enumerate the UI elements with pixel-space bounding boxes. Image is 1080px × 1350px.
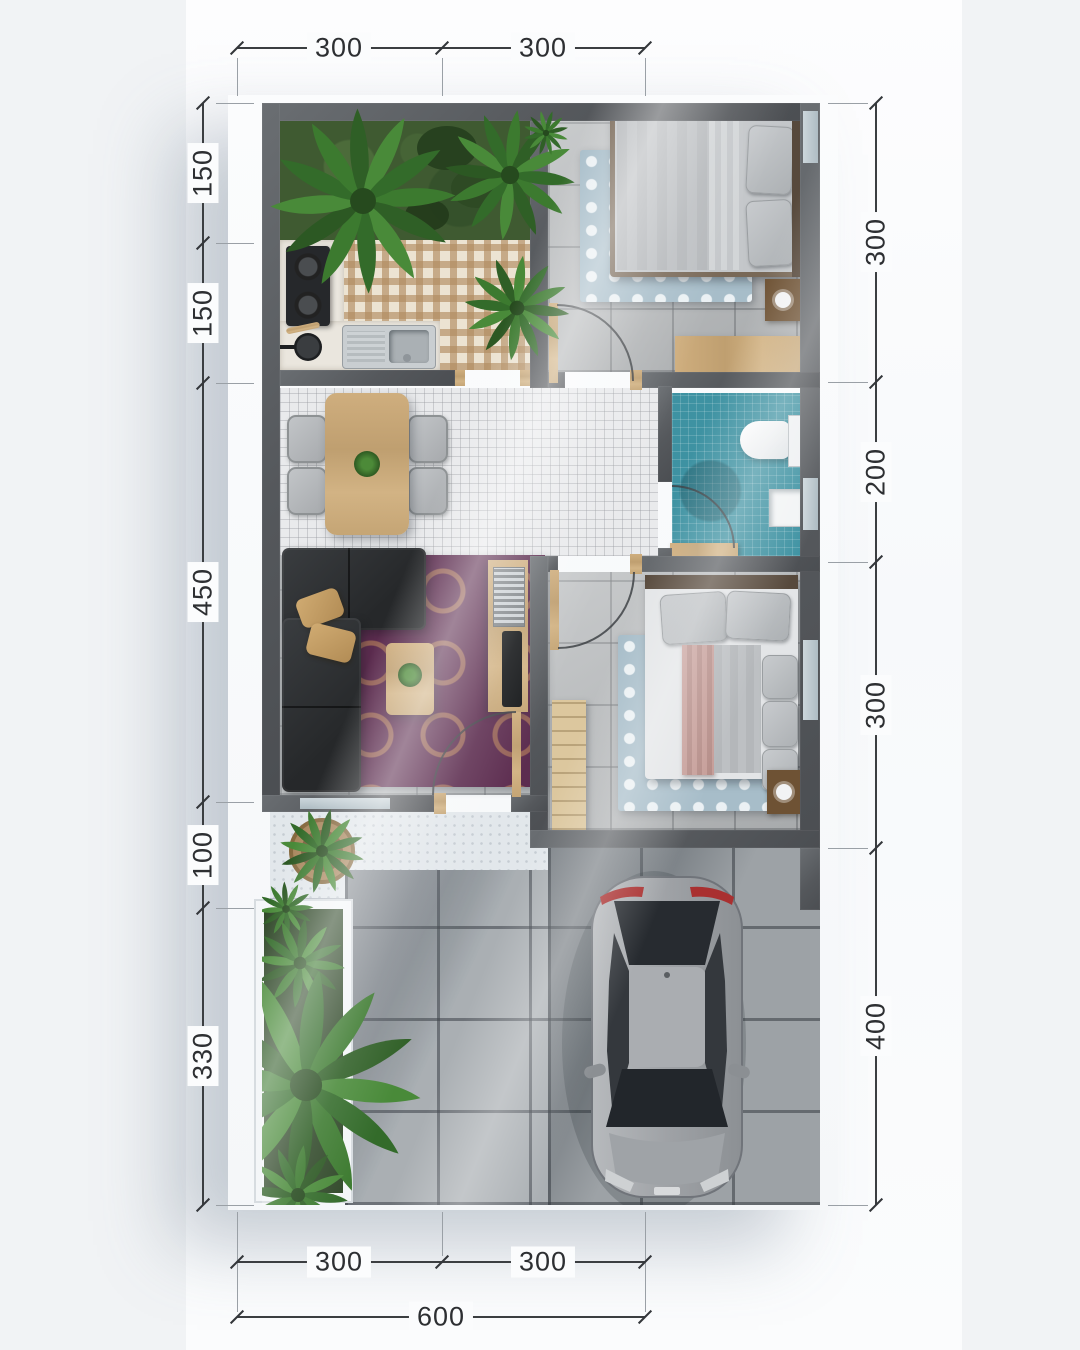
cooktop <box>286 246 330 326</box>
bedroom1-bed <box>610 113 800 277</box>
walkway-paving <box>345 870 548 1205</box>
folded-throw <box>709 120 743 270</box>
wall-living-bottom-b <box>511 795 548 812</box>
bathroom-floor <box>672 393 800 556</box>
pink-throw <box>682 645 714 775</box>
carport-floor <box>548 848 820 1205</box>
toilet-bowl <box>740 421 790 459</box>
bedroom1-door-jamb <box>630 370 642 390</box>
bedroom1-window <box>803 111 818 163</box>
bedroom1-headboard <box>792 113 800 277</box>
bedroom2-bed <box>645 575 798 779</box>
dining-chair <box>408 467 448 515</box>
wall-top <box>262 103 820 121</box>
bedroom2-door-jamb <box>630 554 642 574</box>
bedroom1-nightstand <box>765 279 800 321</box>
wall-right-stub <box>800 848 820 910</box>
dining-chair <box>287 467 327 515</box>
duvet <box>617 120 709 270</box>
indoor-garden-floor <box>280 121 530 240</box>
bed-pillow <box>725 590 791 641</box>
wall-bathroom-left-a <box>658 386 672 482</box>
bathroom-shelf <box>670 543 738 557</box>
dining-chair <box>408 415 448 463</box>
kitchen-sink <box>342 325 436 369</box>
kitchen-opening-jamb <box>520 370 530 386</box>
television <box>502 631 522 707</box>
side-pillow <box>762 701 798 747</box>
dining-chair <box>287 415 327 463</box>
bedroom2-window <box>803 640 818 720</box>
coffee-table-plant <box>398 663 422 687</box>
garden-planter <box>254 899 353 1203</box>
side-pillow <box>762 655 798 699</box>
bedroom1-desk <box>675 336 800 372</box>
gray-duvet <box>714 645 761 773</box>
wall-bedroom2-top-b <box>635 556 820 572</box>
bedroom1-door-leaf <box>549 303 558 383</box>
planter-soil <box>264 909 343 1193</box>
bed-pillow <box>659 591 728 645</box>
living-window <box>300 798 390 809</box>
bedroom2-bench <box>552 700 586 830</box>
bedroom2-nightstand <box>767 770 800 814</box>
wall-bedroom1-left <box>530 121 548 388</box>
bed-pillow <box>745 125 794 195</box>
sink-drainboard <box>347 331 385 362</box>
bedroom2-door-leaf <box>550 570 559 650</box>
sink-faucet <box>403 354 411 362</box>
front-door-leaf <box>512 712 521 797</box>
bathroom-sink <box>769 489 802 527</box>
front-door-jamb <box>434 793 446 814</box>
frying-pan <box>294 333 322 361</box>
wall-kitchen-bottom <box>280 370 455 386</box>
console-shelf <box>493 567 525 627</box>
wall-right <box>800 103 820 848</box>
floor-plan <box>262 103 820 1205</box>
bathroom-window <box>803 478 818 530</box>
table-plant <box>354 451 380 477</box>
wall-left <box>262 103 280 812</box>
kitchen-opening-jamb <box>455 370 465 386</box>
wall-bedroom2-bottom <box>530 830 820 848</box>
bedroom2-headboard <box>645 575 798 589</box>
bed-pillow <box>745 199 794 267</box>
